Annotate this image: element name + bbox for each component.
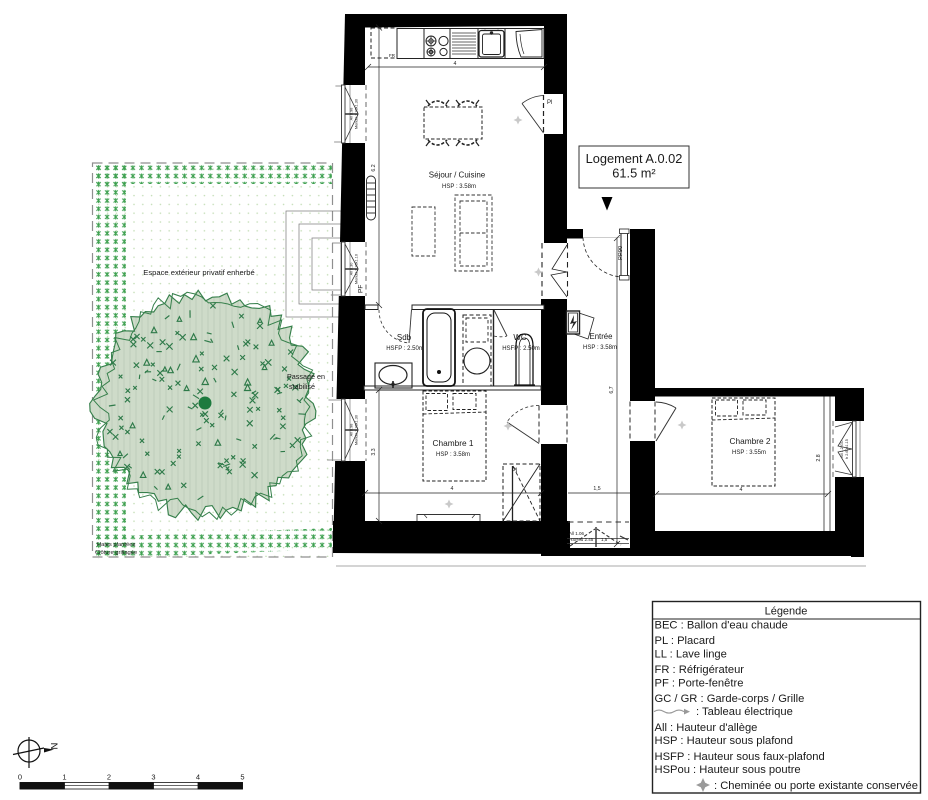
- svg-text:FR : Réfrigérateur: FR : Réfrigérateur: [655, 664, 745, 676]
- svg-text:stabilisé: stabilisé: [289, 382, 315, 391]
- svg-text:4: 4: [740, 487, 743, 493]
- svg-text:HSP : 3.58m: HSP : 3.58m: [442, 184, 476, 190]
- svg-text:HSPou : Hauteur sous poutre: HSPou : Hauteur sous poutre: [655, 764, 801, 776]
- svg-text:Sdb: Sdb: [397, 333, 412, 342]
- svg-text:4: 4: [454, 61, 457, 67]
- svg-text:: Tableau électrique: : Tableau électrique: [696, 706, 793, 718]
- svg-text:Entrée: Entrée: [590, 332, 613, 341]
- svg-text:PF : Porte-fenêtre: PF : Porte-fenêtre: [655, 677, 744, 689]
- svg-text:Légende: Légende: [765, 606, 808, 618]
- svg-text:All 0.98: All 0.98: [350, 108, 354, 121]
- svg-text:5: 5: [240, 773, 244, 782]
- svg-text:LL : Lave linge: LL : Lave linge: [655, 648, 727, 660]
- svg-text:All : Hauteur d'allège: All : Hauteur d'allège: [655, 722, 758, 734]
- svg-text:HSFP : Hauteur sous faux-plafo: HSFP : Hauteur sous faux-plafond: [655, 751, 825, 763]
- svg-text:GC / GR : Garde-corps / Grille: GC / GR : Garde-corps / Grille: [655, 693, 805, 705]
- svg-text:61.5 m²: 61.5 m²: [612, 166, 656, 181]
- svg-text:Chambre 2: Chambre 2: [729, 436, 770, 446]
- svg-text:h 2.60x1.15: h 2.60x1.15: [845, 439, 849, 459]
- svg-text:N: N: [48, 743, 59, 750]
- svg-text:6,7: 6,7: [609, 386, 615, 393]
- svg-text:HSP : Hauteur sous plafond: HSP : Hauteur sous plafond: [655, 735, 793, 747]
- svg-text:1,5: 1,5: [601, 537, 608, 542]
- svg-text:HSPou 2.45: HSPou 2.45: [569, 537, 594, 542]
- svg-text:1,5: 1,5: [593, 486, 600, 492]
- svg-text:PL : Placard: PL : Placard: [655, 635, 716, 647]
- svg-text:1: 1: [62, 773, 66, 782]
- svg-text:: Cheminée ou porte existante: : Cheminée ou porte existante conservée: [714, 780, 918, 792]
- svg-text:Chambre 1: Chambre 1: [432, 438, 473, 448]
- svg-text:Menuis 2.20x1.10: Menuis 2.20x1.10: [355, 254, 359, 284]
- svg-text:FR: FR: [389, 53, 396, 58]
- svg-text:3.3: 3.3: [371, 448, 377, 455]
- svg-text:Menuis 1.20x1.30: Menuis 1.20x1.30: [355, 99, 359, 129]
- svg-text:6.2: 6.2: [371, 164, 377, 171]
- svg-text:HSFP : 2.50m: HSFP : 2.50m: [502, 346, 540, 352]
- svg-text:Pl: Pl: [547, 100, 552, 106]
- svg-text:BEC : Ballon d'eau chaude: BEC : Ballon d'eau chaude: [655, 620, 788, 632]
- svg-text:4: 4: [451, 486, 454, 492]
- svg-text:HSP : 3.58m: HSP : 3.58m: [436, 452, 470, 458]
- svg-text:Séjour / Cuisine: Séjour / Cuisine: [429, 171, 486, 180]
- svg-text:All 1.2/GC: All 1.2/GC: [840, 440, 844, 458]
- svg-text:2: 2: [107, 773, 111, 782]
- svg-text:4: 4: [196, 773, 200, 782]
- svg-text:Pl: Pl: [512, 468, 517, 474]
- svg-text:All 0.98: All 0.98: [350, 424, 354, 437]
- svg-text:HSFP : 2.50m: HSFP : 2.50m: [386, 346, 424, 352]
- svg-text:All 0.30: All 0.30: [350, 263, 354, 276]
- svg-text:0: 0: [18, 773, 22, 782]
- svg-text:Haies plantées: Haies plantées: [97, 542, 135, 548]
- svg-text:HSP : 3.58m: HSP : 3.58m: [583, 345, 617, 351]
- svg-text:2.8: 2.8: [816, 454, 822, 461]
- svg-text:PF: PF: [358, 285, 365, 293]
- svg-text:Passage en: Passage en: [287, 372, 325, 381]
- svg-text:Clôture grillagée: Clôture grillagée: [95, 550, 137, 556]
- svg-text:Menuis 1.20x1.30: Menuis 1.20x1.30: [355, 415, 359, 445]
- svg-text:PP90: PP90: [618, 246, 624, 260]
- svg-text:HSP : 3.55m: HSP : 3.55m: [732, 450, 766, 456]
- svg-text:3: 3: [151, 773, 155, 782]
- svg-text:WC: WC: [513, 333, 527, 342]
- svg-text:Espace extérieur privatif enhe: Espace extérieur privatif enherbé: [143, 268, 254, 277]
- svg-text:All 1.06: All 1.06: [569, 531, 585, 536]
- svg-text:Logement A.0.02: Logement A.0.02: [586, 151, 683, 166]
